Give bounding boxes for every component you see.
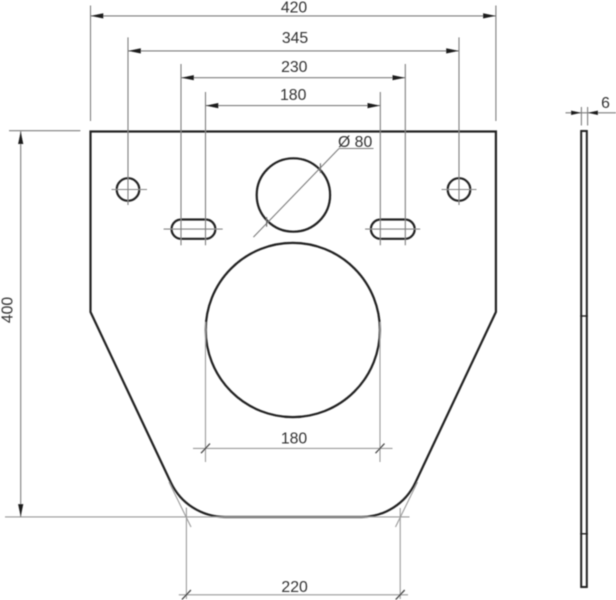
svg-text:Ø 80: Ø 80 — [338, 134, 372, 151]
svg-text:230: 230 — [281, 59, 308, 76]
svg-text:180: 180 — [280, 87, 307, 104]
svg-text:6: 6 — [601, 95, 610, 112]
svg-text:180: 180 — [281, 430, 308, 447]
svg-text:345: 345 — [282, 30, 309, 47]
svg-text:400: 400 — [0, 297, 17, 324]
svg-text:220: 220 — [281, 579, 308, 596]
svg-text:420: 420 — [281, 0, 308, 17]
